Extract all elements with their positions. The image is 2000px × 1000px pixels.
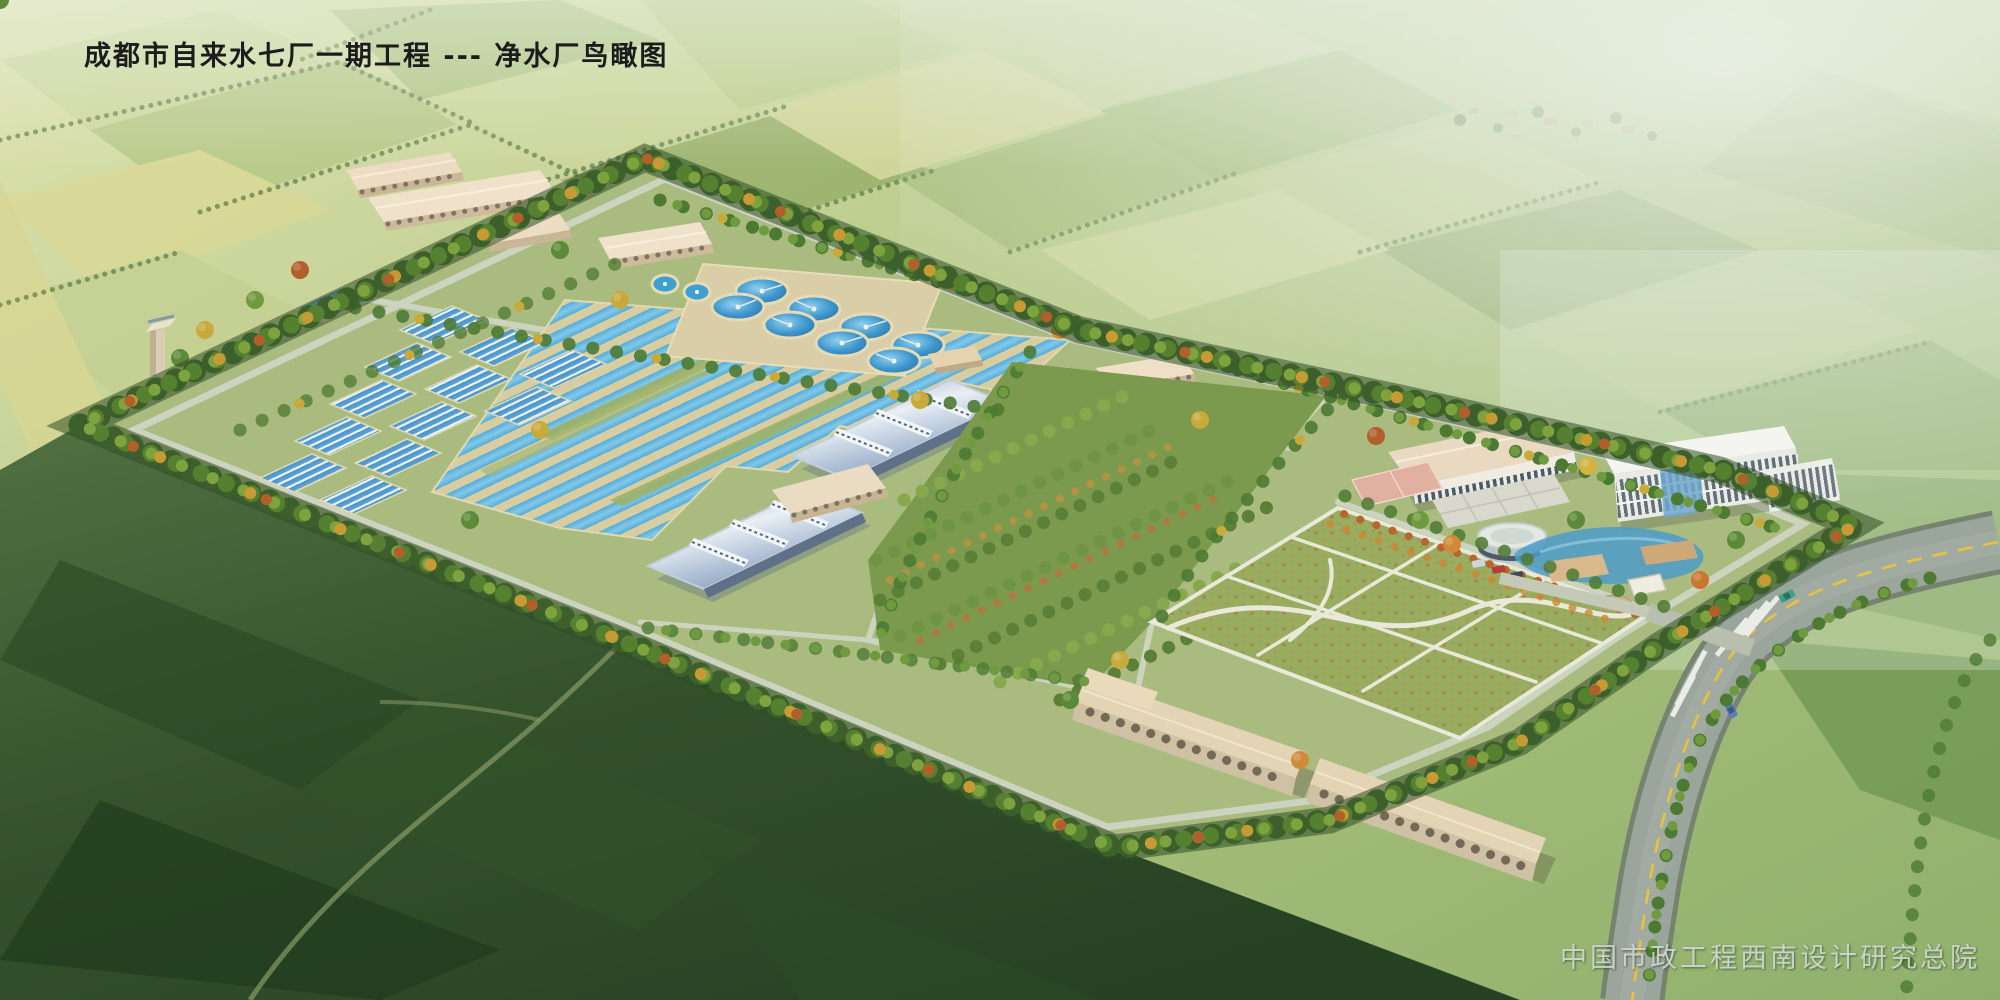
clarifier-group — [666, 264, 944, 376]
aerial-rendering — [0, 0, 2000, 1000]
page-title: 成都市自来水七厂一期工程 --- 净水厂鸟瞰图 — [84, 34, 668, 73]
rendering-canvas: 成都市自来水七厂一期工程 --- 净水厂鸟瞰图 中国市政工程西南设计研究总院 — [0, 0, 2000, 1000]
design-institute-credit: 中国市政工程西南设计研究总院 — [1560, 936, 1960, 975]
